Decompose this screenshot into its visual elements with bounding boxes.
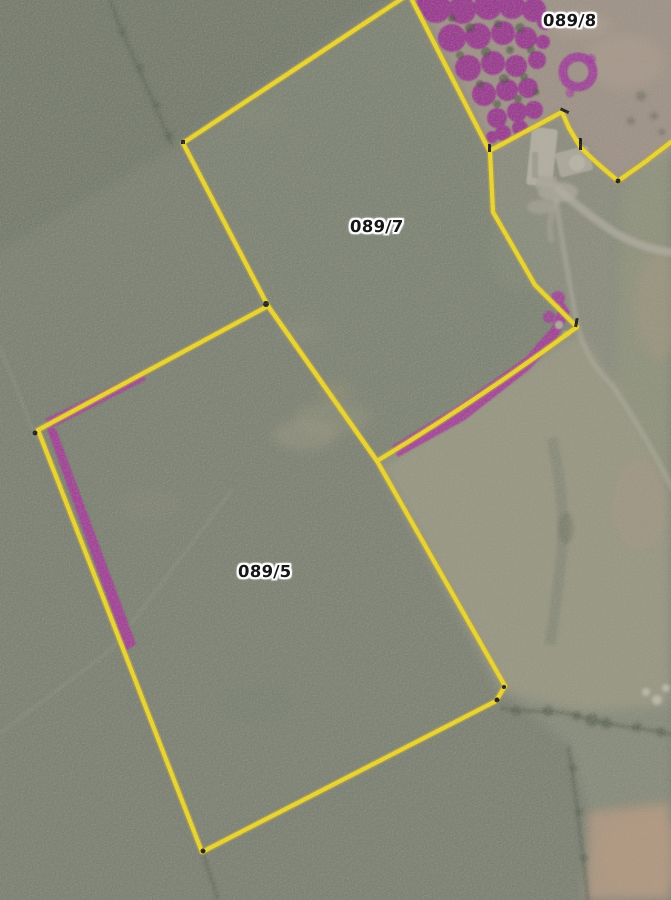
parcel-label-089-8: 089/8	[543, 11, 597, 30]
parcel-label-089-5: 089/5	[238, 562, 292, 581]
scan-tint	[0, 0, 671, 900]
aerial-photo-map: 089/8 089/7 089/5	[0, 0, 671, 900]
parcel-label-089-7: 089/7	[350, 217, 404, 236]
map-image	[0, 0, 671, 900]
